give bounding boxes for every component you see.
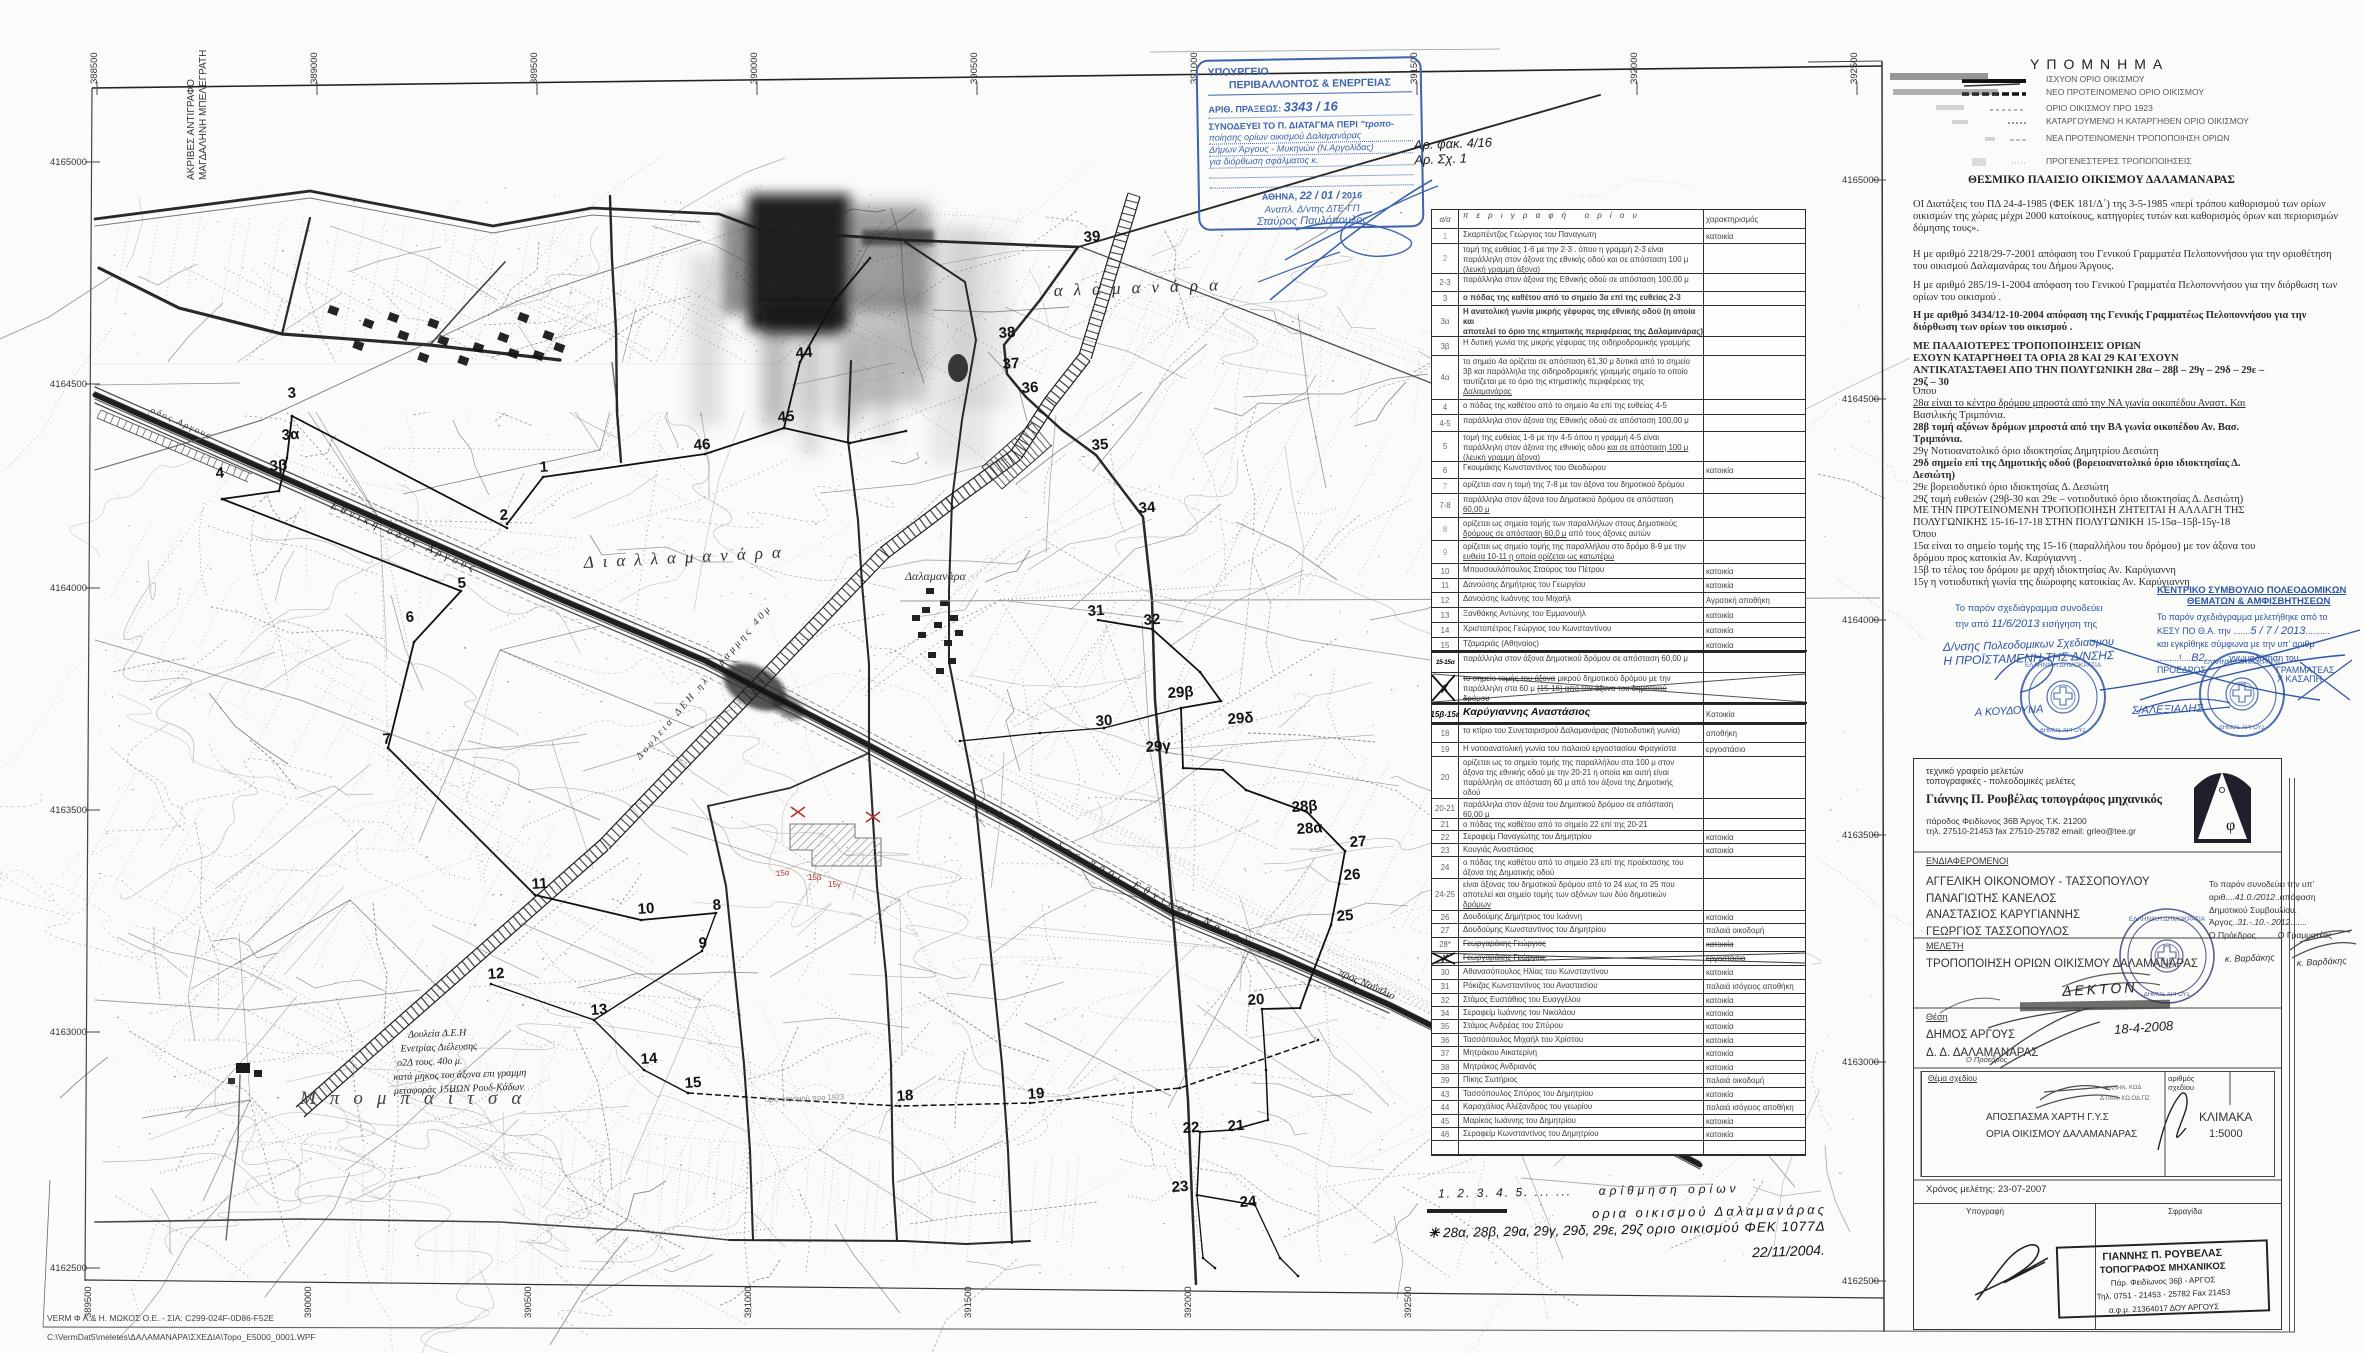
svg-text:15: 15 (684, 1074, 702, 1092)
svg-text:14: 14 (640, 1050, 658, 1068)
svg-text:7: 7 (382, 730, 392, 748)
svg-text:388500: 388500 (89, 52, 100, 84)
svg-text:3: 3 (287, 384, 297, 402)
svg-text:45: 45 (777, 408, 795, 426)
svg-text:8: 8 (712, 896, 722, 914)
svg-text:Σ/ΑΛΕΞΙΑΔΗΣ: Σ/ΑΛΕΞΙΑΔΗΣ (2131, 703, 2204, 718)
svg-text:39: 39 (1083, 228, 1101, 246)
svg-text:4164000: 4164000 (50, 583, 87, 594)
svg-text:21: 21 (1227, 1117, 1245, 1135)
svg-text:Δουλεία Δ.Ε.Η: Δουλεία Δ.Ε.Η (407, 1027, 467, 1040)
svg-text:34: 34 (1138, 499, 1156, 517)
svg-text:Διαλλαμανάρα: Διαλλαμανάρα (582, 542, 790, 572)
svg-text:ο2Δ τους. 40ο μ.: ο2Δ τους. 40ο μ. (397, 1056, 463, 1069)
svg-text:18: 18 (896, 1087, 914, 1105)
svg-text:4164000: 4164000 (1842, 615, 1879, 626)
svg-text:37: 37 (1002, 355, 1020, 373)
svg-text:389500: 389500 (529, 52, 540, 84)
svg-text:38: 38 (998, 324, 1016, 342)
svg-text:VERM Φ Α.& Η. ΜΩΚΟΣ Ο.Ε. - ΣΙ: VERM Φ Α.& Η. ΜΩΚΟΣ Ο.Ε. - ΣΙΑ: C299-024… (47, 1313, 274, 1323)
svg-text:4163500: 4163500 (50, 805, 87, 816)
svg-text:27: 27 (1349, 833, 1367, 851)
svg-text:5: 5 (457, 574, 467, 592)
svg-text:44: 44 (795, 344, 813, 362)
svg-text:46: 46 (693, 436, 711, 454)
svg-text:15γ: 15γ (828, 880, 841, 889)
svg-text:Ενετρίας Διέλευσης: Ενετρίας Διέλευσης (399, 1041, 478, 1055)
svg-text:13: 13 (590, 1001, 608, 1019)
svg-text:4163000: 4163000 (50, 1027, 87, 1038)
svg-text:1: 1 (539, 458, 549, 476)
svg-text:24: 24 (1239, 1193, 1257, 1211)
svg-text:6: 6 (405, 608, 415, 626)
svg-text:391500: 391500 (963, 1286, 974, 1318)
svg-text:392000: 392000 (1183, 1286, 1194, 1318)
svg-text:4164500: 4164500 (50, 379, 87, 390)
svg-text:ΑΚΡΙΒΕΣ ΑΝΤΙΓΡΑΦΟ: ΑΚΡΙΒΕΣ ΑΝΤΙΓΡΑΦΟ (186, 79, 197, 180)
svg-text:23: 23 (1171, 1178, 1189, 1196)
svg-text:4165000: 4165000 (50, 157, 87, 168)
svg-text:12: 12 (487, 965, 505, 983)
svg-text:3α: 3α (281, 426, 300, 444)
svg-text:390500: 390500 (969, 52, 980, 84)
svg-text:15α: 15α (776, 868, 790, 878)
svg-text:Α ΚΟΥΔΟΥΝΑ: Α ΚΟΥΔΟΥΝΑ (1974, 703, 2044, 719)
svg-text:389000: 389000 (309, 52, 320, 84)
svg-text:392500: 392500 (1403, 1286, 1414, 1318)
svg-text:392500: 392500 (1849, 52, 1860, 84)
svg-text:29β: 29β (1167, 683, 1194, 702)
svg-text:Εθνικη οδος προς Εθνικου Να: Εθνικη οδος προς Εθνικου Ναυπλιου (983, 804, 1280, 963)
svg-text:36: 36 (1021, 379, 1039, 397)
svg-text:28α: 28α (1296, 819, 1324, 838)
svg-text:Εθνικη οδος Αργους: Εθνικη οδος Αργους (328, 499, 480, 575)
svg-text:3β: 3β (269, 457, 288, 475)
svg-text:390000: 390000 (749, 52, 760, 84)
svg-text:392000: 392000 (1629, 52, 1640, 84)
svg-text:31: 31 (1087, 602, 1105, 620)
svg-text:4162500: 4162500 (50, 1263, 87, 1274)
svg-text:391000: 391000 (743, 1286, 754, 1318)
svg-text:2: 2 (499, 506, 509, 524)
svg-text:4163500: 4163500 (1842, 830, 1879, 841)
svg-text:30: 30 (1095, 712, 1113, 730)
svg-text:29δ: 29δ (1227, 709, 1254, 728)
svg-text:ΔΗΜΟΣ ΑΡΓΟΥΣ: ΔΗΜΟΣ ΑΡΓΟΥΣ (2219, 725, 2266, 731)
svg-text:15β: 15β (808, 873, 822, 882)
svg-text:390000: 390000 (303, 1286, 314, 1318)
svg-text:Δαλαμανάρα: Δαλαμανάρα (904, 569, 967, 583)
svg-text:26: 26 (1343, 866, 1361, 884)
svg-text:4163000: 4163000 (1842, 1057, 1879, 1068)
svg-text:αλαμανάρα: αλαμανάρα (1053, 275, 1229, 300)
svg-text:9: 9 (698, 934, 708, 952)
svg-text:4162500: 4162500 (1842, 1276, 1879, 1287)
svg-text:32: 32 (1143, 611, 1161, 629)
svg-text:22: 22 (1182, 1119, 1200, 1137)
svg-text:29γ: 29γ (1145, 737, 1172, 756)
svg-text:20: 20 (1247, 991, 1265, 1009)
svg-text:4: 4 (215, 464, 225, 482)
svg-text:C:\VermDat5\meletes\ΔΑΛΑΜΑΝΑΡΑ: C:\VermDat5\meletes\ΔΑΛΑΜΑΝΑΡΑ\ΣΧΕΔΙΑ\To… (47, 1332, 316, 1342)
svg-text:ΜΑΓΔΑΛΗΝΗ ΜΠΕΛΕΓΡΑΤΗ: ΜΑΓΔΑΛΗΝΗ ΜΠΕΛΕΓΡΑΤΗ (198, 50, 209, 180)
svg-text:κατά μηκος του άξονα επι γραμμ: κατά μηκος του άξονα επι γραμμη (393, 1067, 526, 1083)
svg-text:35: 35 (1091, 436, 1109, 454)
svg-text:ΔΗΜΟΣ ΑΡΓΟΥΣ: ΔΗΜΟΣ ΑΡΓΟΥΣ (2040, 728, 2087, 734)
svg-text:4165000: 4165000 (1842, 175, 1879, 186)
svg-text:4164500: 4164500 (1842, 394, 1879, 405)
svg-text:25: 25 (1336, 907, 1354, 925)
svg-text:10: 10 (637, 900, 655, 918)
svg-text:19: 19 (1027, 1085, 1045, 1103)
svg-text:κ. Βαρδάκης: κ. Βαρδάκης (2297, 955, 2348, 968)
svg-text:11: 11 (531, 875, 548, 893)
svg-text:28β: 28β (1291, 797, 1318, 816)
svg-text:390500: 390500 (523, 1286, 534, 1318)
